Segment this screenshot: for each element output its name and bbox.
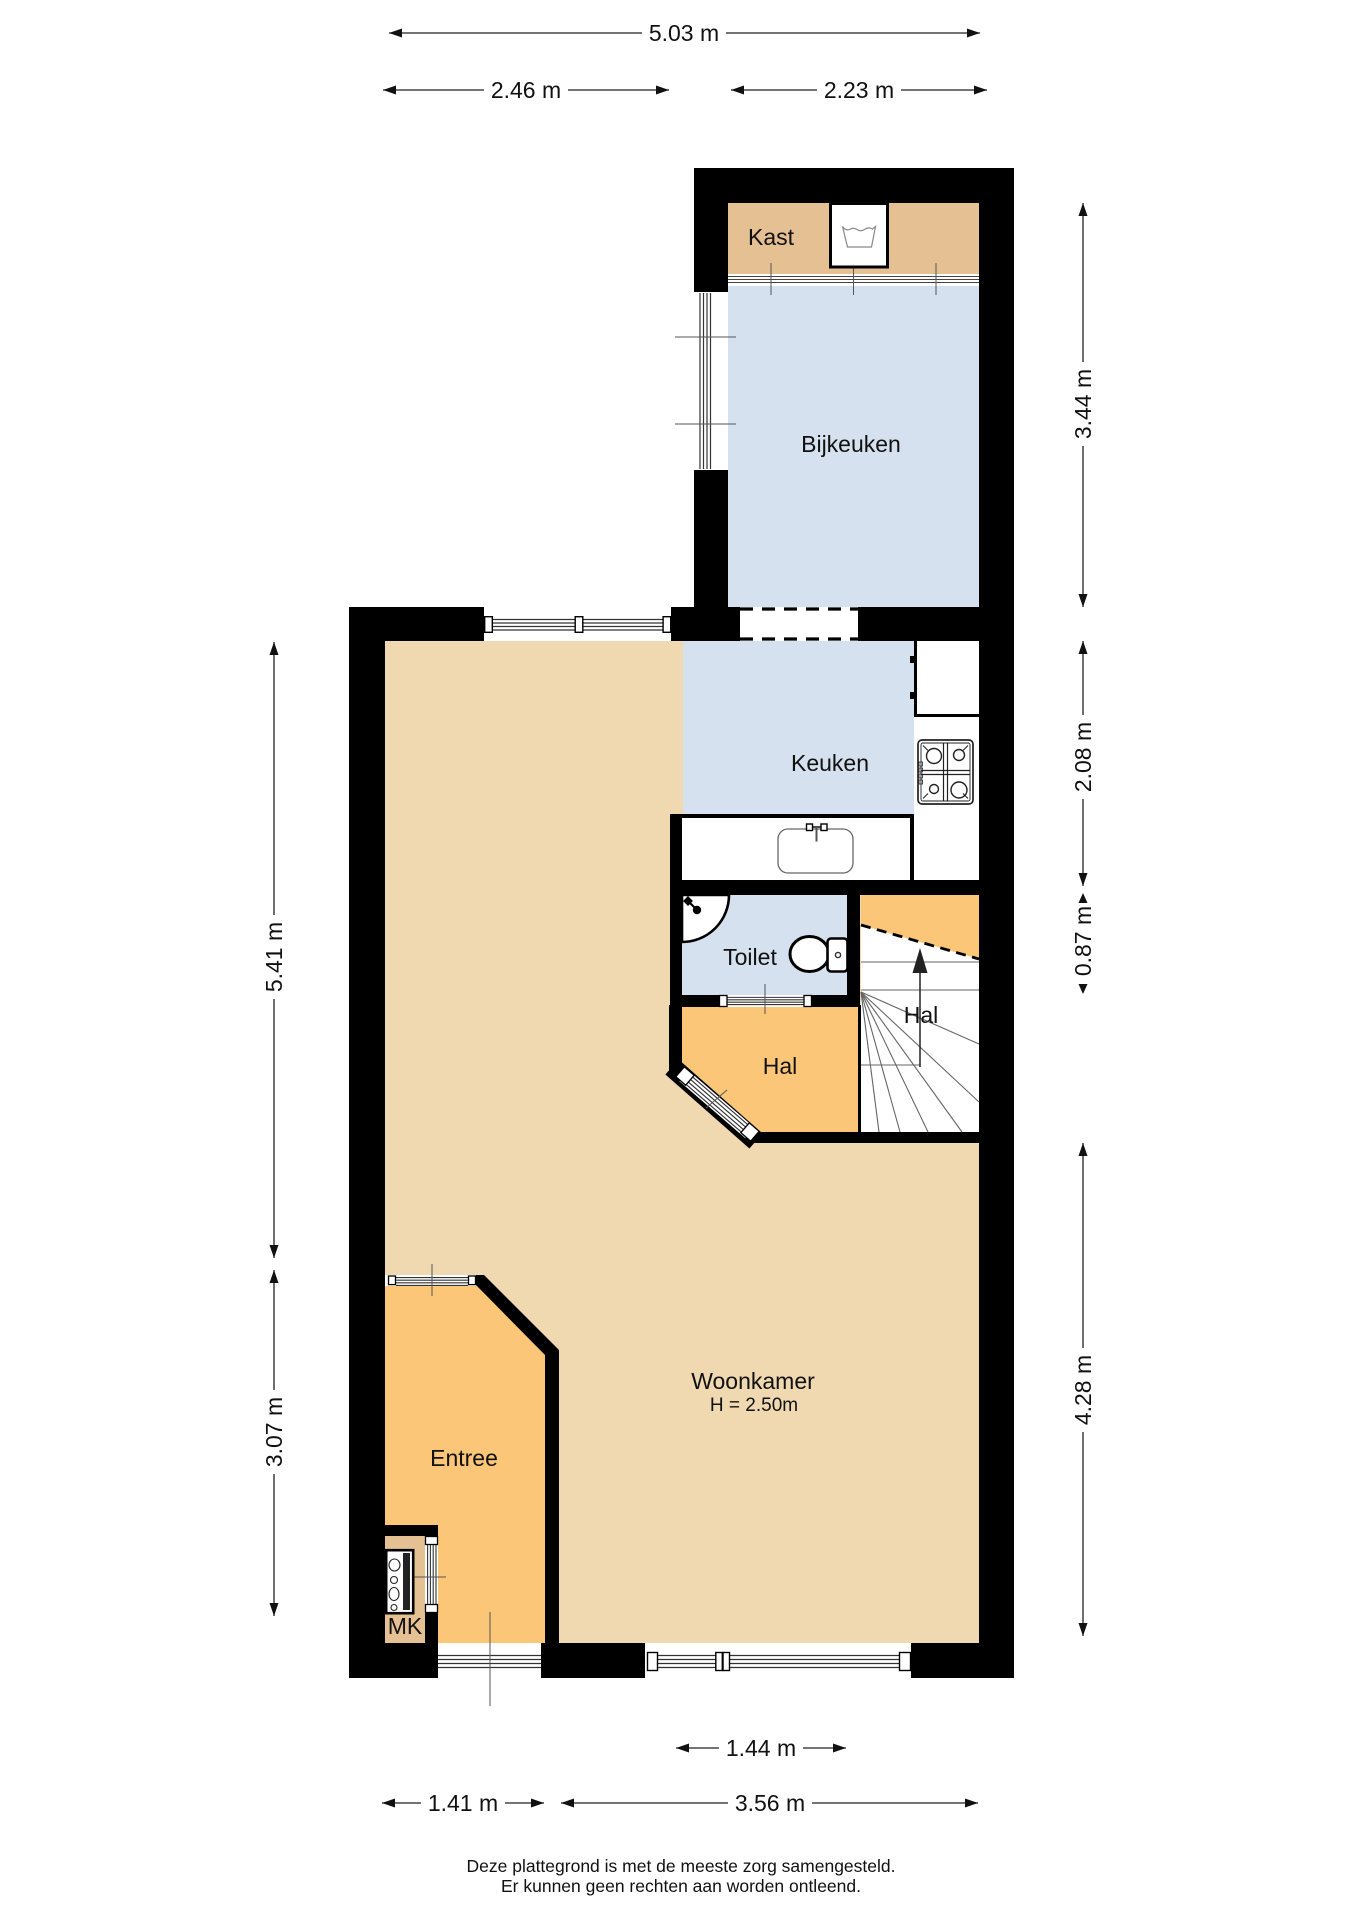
- svg-text:Toilet: Toilet: [723, 944, 777, 970]
- svg-text:Hal: Hal: [763, 1053, 798, 1079]
- svg-text:Keuken: Keuken: [791, 750, 869, 776]
- svg-text:3.07 m: 3.07 m: [261, 1397, 287, 1467]
- svg-text:Hal: Hal: [904, 1002, 939, 1028]
- svg-text:4.28 m: 4.28 m: [1070, 1355, 1096, 1425]
- svg-text:Kast: Kast: [748, 224, 795, 250]
- svg-text:Woonkamer: Woonkamer: [691, 1368, 815, 1394]
- svg-text:1.44 m: 1.44 m: [726, 1735, 796, 1761]
- svg-text:Bijkeuken: Bijkeuken: [801, 431, 901, 457]
- svg-text:2.23 m: 2.23 m: [824, 77, 894, 103]
- svg-text:Er kunnen geen rechten aan wor: Er kunnen geen rechten aan worden ontlee…: [501, 1876, 861, 1896]
- svg-text:5.41 m: 5.41 m: [261, 922, 287, 992]
- svg-text:MK: MK: [388, 1613, 423, 1639]
- svg-text:1.41 m: 1.41 m: [428, 1790, 498, 1816]
- svg-text:Deze plattegrond is met de mee: Deze plattegrond is met de meeste zorg s…: [467, 1856, 896, 1876]
- svg-text:5.03 m: 5.03 m: [649, 20, 719, 46]
- svg-text:2.08 m: 2.08 m: [1070, 722, 1096, 792]
- svg-text:Entree: Entree: [430, 1445, 498, 1471]
- svg-text:2.46 m: 2.46 m: [491, 77, 561, 103]
- svg-text:3.56 m: 3.56 m: [735, 1790, 805, 1816]
- svg-text:0.87 m: 0.87 m: [1070, 906, 1096, 976]
- svg-text:3.44 m: 3.44 m: [1070, 369, 1096, 439]
- svg-text:H = 2.50m: H = 2.50m: [710, 1395, 798, 1416]
